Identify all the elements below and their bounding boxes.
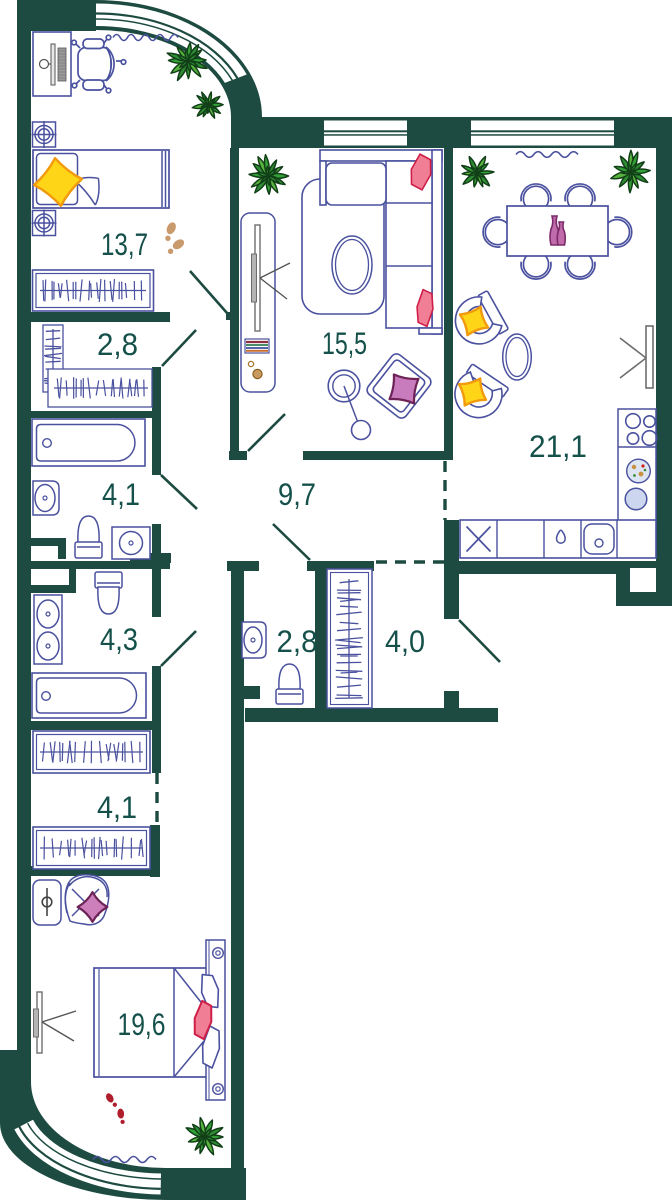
svg-text:4,3: 4,3: [100, 621, 138, 657]
svg-text:9,7: 9,7: [278, 476, 316, 512]
svg-text:15,5: 15,5: [322, 325, 367, 361]
svg-text:19,6: 19,6: [118, 1006, 166, 1042]
svg-text:2,8: 2,8: [277, 623, 318, 659]
svg-text:4,1: 4,1: [102, 476, 140, 512]
svg-text:13,7: 13,7: [101, 226, 148, 262]
svg-text:4,0: 4,0: [385, 623, 425, 659]
svg-text:4,1: 4,1: [97, 789, 137, 825]
svg-text:2,8: 2,8: [97, 326, 138, 362]
svg-text:21,1: 21,1: [529, 428, 587, 464]
